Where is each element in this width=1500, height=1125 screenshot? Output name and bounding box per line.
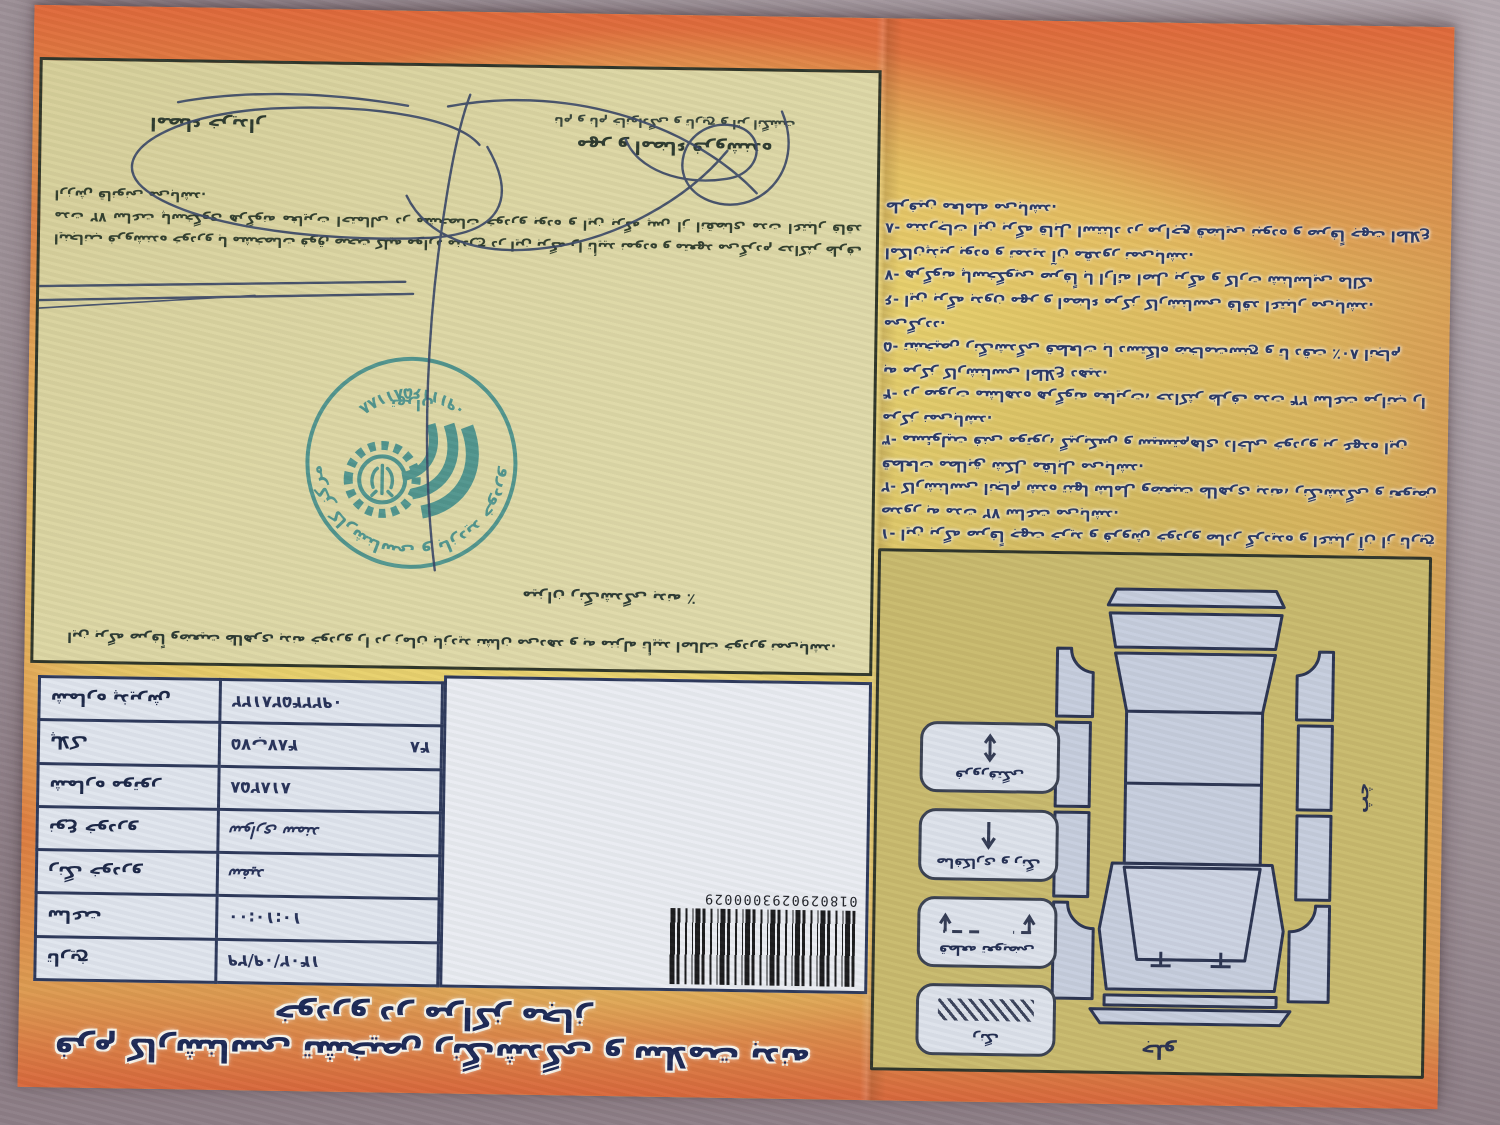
legend-label: قطعه تعویضی [926, 941, 1048, 958]
legend-item-dent: فرورفتگی [919, 721, 1060, 795]
term-item: ۷- هرگونه پاسخگویی صرفاً با ارائه اصل بر… [884, 242, 1441, 295]
legend-label: صافکاری و رنگ [927, 853, 1049, 870]
row-value: ۰۹۲۲۴۵۲۸۱۲۲ [220, 679, 443, 726]
official-stamp: مرکز کارشناسی و بازدید خودرو ۰۹۱۱۱۶۵۸۱۱۸… [297, 348, 527, 578]
row-label: شماره موتور [37, 763, 219, 809]
diagram-side-label: چپ [1353, 782, 1373, 813]
row-label: تاریخ [35, 936, 217, 982]
table-row: شماره موتور۸۱۸۲۵۸ [37, 763, 441, 813]
row-label: نوع خودرو [37, 806, 219, 852]
term-item: ۱- این برگه صرفاً جهت خرید و فروش خودرو … [880, 500, 1437, 553]
seller-signature-caption: مهر و امضاء فروشنده نام و نام خانوادگی و… [529, 114, 820, 161]
row-value: ۷۵ب۴۸۷۴۸ [219, 723, 442, 770]
row-label: پلاک [38, 720, 220, 766]
barcode-number: 0180290293000029 [664, 890, 858, 909]
legend-item-replaced: قطعه تعویضی [917, 896, 1058, 970]
stub-box: 0180290293000029 [439, 675, 872, 994]
term-item: ۲- کارشناسی انجام شده تنها شامل وضعیت ظا… [881, 454, 1438, 507]
terms-list: ۱- این برگه صرفاً جهت خرید و فروش خودرو … [880, 192, 1441, 553]
document-sheet: جلو چپ [18, 5, 1455, 1109]
stamp-city-text: تهران [391, 396, 434, 415]
table-row: ساعت۱۰:۱۰:۰۰ [35, 893, 439, 943]
stamp-signature-box: این برگه صرفاً وضعیت ظاهری بدنه خودرو را… [30, 57, 881, 676]
table-row: نوع خودروسواری سمند [37, 806, 441, 856]
validity-note: این برگه صرفاً وضعیت ظاهری بدنه خودرو را… [46, 628, 858, 657]
term-item: ۸- مندرجات این برگه قابل استناد در مراجع… [885, 195, 1442, 248]
dashed-bracket-icon [935, 909, 1039, 937]
barcode-bars [668, 908, 855, 987]
seller-declaration-paragraph: اینجانب فروشنده خودرو با مشخصات فوق صحت … [54, 182, 863, 261]
document-title-banner: فرم کارشناسی تشخیص رنگ‌شدگی و سلامت بدنه… [26, 983, 839, 1088]
double-arrow-icon [980, 733, 1000, 763]
legend-item-bodywork: صافکاری و رنگ [918, 808, 1059, 882]
row-label: رنگ خودرو [36, 850, 218, 896]
table-row: رنگ خودروسفید [36, 850, 440, 900]
term-item: ۵- تشخیص رنگ‌شدگی قطعات با دستگاه ضخامت‌… [883, 313, 1440, 366]
table-row: پلاک ۷۵ب۴۸۷۴۸ [38, 720, 442, 770]
hatch-swatch-icon [938, 999, 1034, 1023]
arrow-up-icon [978, 820, 998, 850]
row-value: ۱۴۰۲/۰۹/۲۹ [216, 939, 439, 986]
plate-region: ۴۸ [410, 738, 430, 757]
paint-percent-line: میزان رنگ‌شدگی بدنه ٪ [522, 588, 752, 610]
row-value: سفید [217, 853, 440, 900]
term-item: ۴- در صورت مشاهده هرگونه مغایرت، حداکثر … [882, 360, 1439, 413]
table-row: تاریخ۱۴۰۲/۰۹/۲۹ [35, 936, 439, 986]
body-diagram-box: جلو چپ [870, 548, 1432, 1079]
carpet-background: جلو چپ [0, 0, 1500, 1125]
legend-label: رنگ [924, 1029, 1046, 1046]
damage-legend: رنگ قطعه تعویضی [915, 705, 1061, 1064]
row-value: سواری سمند [218, 809, 441, 856]
row-label: ساعت [35, 893, 217, 939]
legend-label: فرورفتگی [928, 766, 1050, 783]
plate-main: ۷۵ب۴۸۷ [231, 735, 298, 755]
barcode: 0180290293000029 [662, 876, 860, 987]
table-row: شماره پذیرش۰۹۲۲۴۵۲۸۱۲۲ [39, 677, 443, 727]
row-label: شماره پذیرش [39, 677, 221, 723]
buyer-signature-caption: امضاء خریدار [88, 112, 328, 137]
row-value: ۱۰:۱۰:۰۰ [216, 896, 439, 943]
term-item: ۳- مسئولیت فنی موتور، گیربکس و سیستم‌های… [882, 407, 1439, 460]
vehicle-spec-table: تاریخ۱۴۰۲/۰۹/۲۹ ساعت۱۰:۱۰:۰۰ رنگ خودروسف… [33, 675, 444, 987]
legend-item-paint: رنگ [915, 983, 1056, 1057]
diagram-front-label: جلو [1113, 1039, 1203, 1064]
car-top-view-diagram [1044, 576, 1343, 1033]
row-value: ۸۱۸۲۵۸ [218, 766, 441, 813]
